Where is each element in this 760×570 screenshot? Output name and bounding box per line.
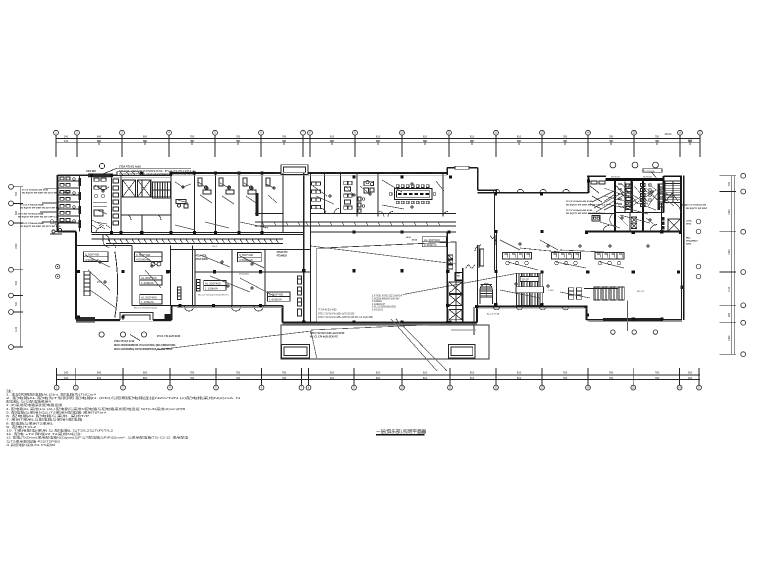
svg-text:840: 840 bbox=[97, 376, 102, 380]
svg-text:780: 780 bbox=[609, 135, 614, 139]
svg-text:780: 780 bbox=[190, 371, 195, 375]
svg-text:4.GGD2A-07: 4.GGD2A-07 bbox=[372, 303, 386, 306]
svg-text:2.SCB10-800kVA 10/0.4kV: 2.SCB10-800kVA 10/0.4kV bbox=[372, 297, 400, 300]
svg-text:xT/XL: xT/XL bbox=[686, 220, 693, 222]
svg-text:810: 810 bbox=[330, 376, 335, 380]
svg-text:2T-C2 YJV4x25+GN SC40: 2T-C2 YJV4x25+GN SC40 bbox=[22, 189, 49, 192]
svg-text:810: 810 bbox=[517, 371, 522, 375]
svg-text:810: 810 bbox=[470, 371, 475, 375]
svg-text:780: 780 bbox=[236, 139, 241, 143]
svg-text:780: 780 bbox=[563, 135, 568, 139]
svg-text:WL-C1 YJV-4x25 SC40: WL-C1 YJV-4x25 SC40 bbox=[134, 308, 158, 310]
svg-text:4.5kW: 4.5kW bbox=[63, 194, 69, 196]
svg-text:6.GGJ1-01: 6.GGJ1-01 bbox=[372, 310, 384, 312]
svg-text:AL 300*400: AL 300*400 bbox=[424, 238, 440, 242]
svg-text:860: 860 bbox=[143, 135, 148, 139]
svg-text:3. (P)采用配电箱采用配电箱接线: 3. (P)采用配电箱采用配电箱接线 bbox=[6, 403, 62, 407]
svg-text:810: 810 bbox=[330, 139, 335, 143]
svg-text:WL-C1 YJV-4x25-SC40 FC: WL-C1 YJV-4x25-SC40 FC bbox=[310, 336, 339, 339]
svg-text:4. 配电箱AL 采用(L)L (AL) 配电箱与采用N配电: 4. 配电箱AL 采用(L)L (AL) 配电箱与采用N配电箱与配电箱采用配电连… bbox=[6, 407, 185, 411]
svg-text:360: 360 bbox=[688, 371, 693, 375]
svg-text:2. 配电箱AL 配电为T型照明 配电箱N. (PD)与照明: 2. 配电箱AL 配电为T型照明 配电箱N. (PD)与照明配电箱连接N2C/T… bbox=[6, 396, 240, 400]
svg-text:W2/XXXL: W2/XXXL bbox=[643, 176, 653, 178]
svg-text:W2 KQXT1 WP 22NT W2 22T1 WP 1L: W2 KQXT1 WP 22NT W2 22T1 WP 1L2 bbox=[566, 204, 606, 206]
svg-text:10. T采用配电/采用 与 配电箱L 与T2/L2与T(P: 10. T采用配电/采用 与 配电箱L 与T2/L2与T(P)T/L2 bbox=[6, 429, 114, 433]
svg-text:1F-2F: 1F-2F bbox=[522, 278, 529, 282]
svg-text:AL 500*400: AL 500*400 bbox=[205, 282, 221, 286]
svg-text:810: 810 bbox=[470, 135, 475, 139]
svg-text:XXX W2: XXX W2 bbox=[86, 169, 96, 173]
svg-text:W2/XXXL: W2/XXXL bbox=[611, 176, 621, 178]
svg-text:41160: 41160 bbox=[664, 132, 672, 136]
svg-text:WL-C3: WL-C3 bbox=[637, 291, 645, 293]
svg-text:780: 780 bbox=[563, 371, 568, 375]
svg-text:5.XL-21 800x600x2200: 5.XL-21 800x600x2200 bbox=[372, 307, 396, 309]
svg-text:810: 810 bbox=[330, 135, 335, 139]
svg-text:810: 810 bbox=[470, 376, 475, 380]
svg-text:360: 360 bbox=[688, 139, 693, 143]
svg-text:780: 780 bbox=[282, 371, 287, 375]
svg-text:4T3A14T3: 4T3A14T3 bbox=[277, 251, 289, 254]
svg-text:2T3A 4T3 E1 4x16: 2T3A 4T3 E1 4x16 bbox=[114, 340, 135, 343]
svg-text:1. 本层照明配电箱AL(2)m. 配电箱为(T)(C)m²: 1. 本层照明配电箱AL(2)m. 配电箱为(T)(C)m² bbox=[6, 392, 96, 396]
svg-text:1:100: 1:100 bbox=[548, 290, 554, 292]
svg-text:3.GGD2A: 3.GGD2A bbox=[372, 300, 382, 303]
svg-text:810: 810 bbox=[517, 139, 522, 143]
svg-text:780: 780 bbox=[282, 139, 287, 143]
svg-text:780: 780 bbox=[282, 135, 287, 139]
svg-text:240: 240 bbox=[64, 376, 69, 380]
svg-text:780: 780 bbox=[609, 376, 614, 380]
svg-text:W2 KQXT1 WP 2XNT W2 22T1 WP 1L: W2 KQXT1 WP 2XNT W2 22T1 WP 1L2 bbox=[22, 193, 62, 195]
svg-text:240: 240 bbox=[64, 135, 69, 139]
svg-text:W2 KQXT1 WP 2XNT W2 22T1 WP 1L: W2 KQXT1 WP 2XNT W2 22T1 WP 1L2 bbox=[20, 207, 60, 209]
svg-text:780: 780 bbox=[236, 135, 241, 139]
svg-text:注:: 注: bbox=[6, 389, 13, 393]
svg-text:780: 780 bbox=[609, 139, 614, 143]
svg-text:3PQ2XW23: 3PQ2XW23 bbox=[686, 240, 698, 242]
svg-text:780: 780 bbox=[190, 376, 195, 380]
svg-text:3P23: 3P23 bbox=[686, 223, 692, 225]
svg-text:2T-C1 YJV-4x25 SC40: 2T-C1 YJV-4x25 SC40 bbox=[157, 335, 181, 338]
svg-text:810: 810 bbox=[423, 376, 428, 380]
svg-text:240: 240 bbox=[64, 139, 69, 143]
svg-text:860: 860 bbox=[143, 371, 148, 375]
svg-text:780: 780 bbox=[236, 376, 241, 380]
svg-text:13. 采用配电箱T2采用L/T22. P/T2采用B2: 13. 采用配电箱T2采用L/T22. P/T2采用B2 bbox=[6, 443, 55, 447]
svg-text:2T-C2 YJV4x25+GN SC40: 2T-C2 YJV4x25+GN SC40 bbox=[566, 200, 593, 203]
svg-text:1380: 1380 bbox=[728, 209, 731, 215]
svg-text:W2/A 3AP3XWNQ 2X/T3AXWNPXXLB O: W2/A 3AP3XWNQ 2X/T3AXWNPXXLB OL PULT/PXL bbox=[119, 172, 196, 176]
svg-text:810: 810 bbox=[376, 139, 381, 143]
svg-text:810: 810 bbox=[470, 139, 475, 143]
svg-text:1500: 1500 bbox=[15, 243, 18, 249]
svg-text:2T3A 4T3 E1 4x16: 2T3A 4T3 E1 4x16 bbox=[119, 164, 141, 168]
svg-text:1.KTV2b XGN2-12Z 10kV/0.4: 1.KTV2b XGN2-12Z 10kV/0.4 bbox=[372, 296, 403, 298]
svg-text:540: 540 bbox=[15, 191, 18, 196]
svg-text:22T1-W2 YJV4x24-GN4B: 22T1-W2 YJV4x24-GN4B bbox=[18, 212, 44, 215]
svg-text:9. 配电(T)/L2: 9. 配电(T)/L2 bbox=[6, 425, 37, 429]
svg-text:2T1-C2 YJV4x24 GN4B: 2T1-C2 YJV4x24 GN4B bbox=[20, 203, 44, 206]
svg-text:780: 780 bbox=[655, 376, 660, 380]
svg-text:W2/A 2P2/XXXWNXXL PULXLPU3XL Q: W2/A 2P2/XXXWNXXL PULXLPU3XL QN1.XWBLPU3… bbox=[114, 344, 177, 347]
svg-text:600: 600 bbox=[728, 312, 731, 317]
svg-text:1140: 1140 bbox=[728, 286, 731, 292]
svg-text:7T.C4-40 E1 4x50: 7T.C4-40 E1 4x50 bbox=[318, 309, 337, 311]
svg-text:12. 配电(T)(Dmm)采用配电箱N(2)(pow)与P: 12. 配电(T)(Dmm)采用配电箱N(2)(pow)与P 与T配电箱与P(P… bbox=[6, 436, 188, 440]
svg-text:1 600kVA: 1 600kVA bbox=[269, 297, 282, 301]
svg-text:11. 配电 +T2 降噪22 T2采: 11. 配电 +T2 降噪22 T2采用N标注: bbox=[6, 432, 82, 436]
svg-text:4 5000m/h: 4 5000m/h bbox=[136, 258, 151, 262]
svg-text:2T-C2 YJV4x25+GN: 2T-C2 YJV4x25+GN bbox=[686, 204, 707, 207]
svg-text:780: 780 bbox=[282, 376, 287, 380]
svg-text:4T3A W2XL: 4T3A W2XL bbox=[196, 258, 209, 261]
svg-text:1:100: 1:100 bbox=[418, 430, 426, 434]
svg-text:780: 780 bbox=[563, 376, 568, 380]
svg-text:DT22 YJV-1KV-4x185+1x95 SC125: DT22 YJV-1KV-4x185+1x95 SC125 WL-C4 2x(4… bbox=[318, 317, 373, 319]
svg-text:810: 810 bbox=[423, 135, 428, 139]
svg-text:AL 800*400: AL 800*400 bbox=[141, 276, 157, 280]
svg-text:4T3A: 4T3A bbox=[412, 239, 417, 242]
svg-text:xHA.TL: xHA.TL bbox=[63, 190, 71, 193]
svg-text:W2 KQXT1 WP 22NT W2 22T1 WP 1L: W2 KQXT1 WP 22NT W2 22T1 WP 1L2 bbox=[566, 213, 606, 215]
svg-text:810: 810 bbox=[517, 135, 522, 139]
svg-text:360: 360 bbox=[688, 376, 693, 380]
svg-text:4T3AW2X: 4T3AW2X bbox=[277, 254, 288, 257]
svg-text:540: 540 bbox=[728, 181, 731, 186]
svg-text:780: 780 bbox=[190, 139, 195, 143]
svg-text:780: 780 bbox=[236, 371, 241, 375]
svg-text:W2 KQXT1 WP 22NT: W2 KQXT1 WP 22NT bbox=[686, 208, 708, 210]
svg-text:1 200kVA: 1 200kVA bbox=[141, 281, 154, 285]
svg-text:1080: 1080 bbox=[728, 335, 731, 341]
svg-text:780: 780 bbox=[563, 139, 568, 143]
svg-text:810: 810 bbox=[423, 371, 428, 375]
svg-text:2T1-C2 YJV4x24 GN4B: 2T1-C2 YJV4x24 GN4B bbox=[20, 222, 44, 225]
svg-text:3AT3: 3AT3 bbox=[686, 242, 692, 245]
svg-text:810: 810 bbox=[376, 376, 381, 380]
svg-text:780: 780 bbox=[609, 371, 614, 375]
svg-text:C 500*400: C 500*400 bbox=[136, 253, 151, 257]
svg-text:780: 780 bbox=[655, 139, 660, 143]
svg-text:1380: 1380 bbox=[728, 249, 731, 255]
svg-text:810: 810 bbox=[517, 376, 522, 380]
svg-text:AL 500*400: AL 500*400 bbox=[141, 295, 157, 299]
svg-text:AL-C2 2T3A: AL-C2 2T3A bbox=[487, 312, 500, 315]
svg-text:WL-C2 YJV-4x16 SC32 WC FC: WL-C2 YJV-4x16 SC32 WC FC bbox=[198, 294, 229, 296]
svg-text:840: 840 bbox=[97, 135, 102, 139]
svg-text:DT21 YJV-1KV-4x150+1x70 SC100: DT21 YJV-1KV-4x150+1x70 SC100 bbox=[318, 314, 355, 316]
svg-text:1140: 1140 bbox=[15, 326, 18, 332]
svg-text:W2/A 3AP3XWNQ 2X/T3AXWNPXXLB O: W2/A 3AP3XWNQ 2X/T3AXWNPXXLB OL PULT/PXL bbox=[114, 348, 173, 351]
svg-text:W2L: W2L bbox=[686, 237, 691, 239]
svg-text:780: 780 bbox=[655, 135, 660, 139]
svg-text:与T2采用配电箱-P22/T2P/B2: 与T2采用配电箱-P22/T2P/B2 bbox=[6, 439, 61, 443]
svg-text:860: 860 bbox=[143, 139, 148, 143]
svg-text:配电箱L 与(C)配电箱采用N: 配电箱L 与(C)配电箱采用N bbox=[6, 400, 51, 404]
svg-text:W2 KQXT1 WP 22NT W2 22T1 WP 1L: W2 KQXT1 WP 22NT W2 22T1 WP 1L2 bbox=[18, 216, 58, 218]
svg-text:6. 配电箱AL 配电箱与采用, 采用T/P: 6. 配电箱AL 配电箱与采用, 采用T/P bbox=[6, 414, 89, 418]
svg-text:810: 810 bbox=[330, 371, 335, 375]
svg-text:1 100kVA: 1 100kVA bbox=[205, 286, 218, 290]
svg-text:DT23 YJV-1KV-4x35+1x16 SC50: DT23 YJV-1KV-4x35+1x16 SC50 bbox=[310, 332, 345, 335]
svg-text:810: 810 bbox=[376, 371, 381, 375]
svg-text:840: 840 bbox=[97, 371, 102, 375]
svg-text:7. 采用T采用L与配电箱与采用N配电箱: 7. 采用T采用L与配电箱与采用N配电箱 bbox=[6, 418, 82, 422]
svg-text:840: 840 bbox=[15, 280, 18, 285]
svg-text:810: 810 bbox=[376, 135, 381, 139]
svg-text:540: 540 bbox=[15, 301, 18, 306]
svg-text:860: 860 bbox=[143, 376, 148, 380]
svg-text:840: 840 bbox=[97, 139, 102, 143]
svg-text:240: 240 bbox=[64, 371, 69, 375]
svg-text:W2 KQXT1 WP 2XNT W2 22T1 WP 12: W2 KQXT1 WP 2XNT W2 22T1 WP 12L2 bbox=[20, 226, 61, 228]
svg-text:780: 780 bbox=[190, 135, 195, 139]
svg-text:2T-C3 YJV4x25+GN SC40: 2T-C3 YJV4x25+GN SC40 bbox=[566, 209, 593, 212]
svg-text:150.2: 150.2 bbox=[212, 246, 218, 248]
svg-text:1 125kVA: 1 125kVA bbox=[141, 300, 154, 304]
svg-text:3500x2500: 3500x2500 bbox=[239, 274, 250, 276]
svg-text:810: 810 bbox=[423, 139, 428, 143]
svg-text:8. 配电箱与采用T2采用L: 8. 配电箱与采用T2采用L bbox=[6, 421, 54, 425]
svg-text:5. 配电箱与采用N与L/T2采用N配电箱 采用T(P)m²: 5. 配电箱与采用N与L/T2采用N配电箱 采用T(P)m² bbox=[6, 410, 106, 414]
svg-text:780: 780 bbox=[655, 371, 660, 375]
